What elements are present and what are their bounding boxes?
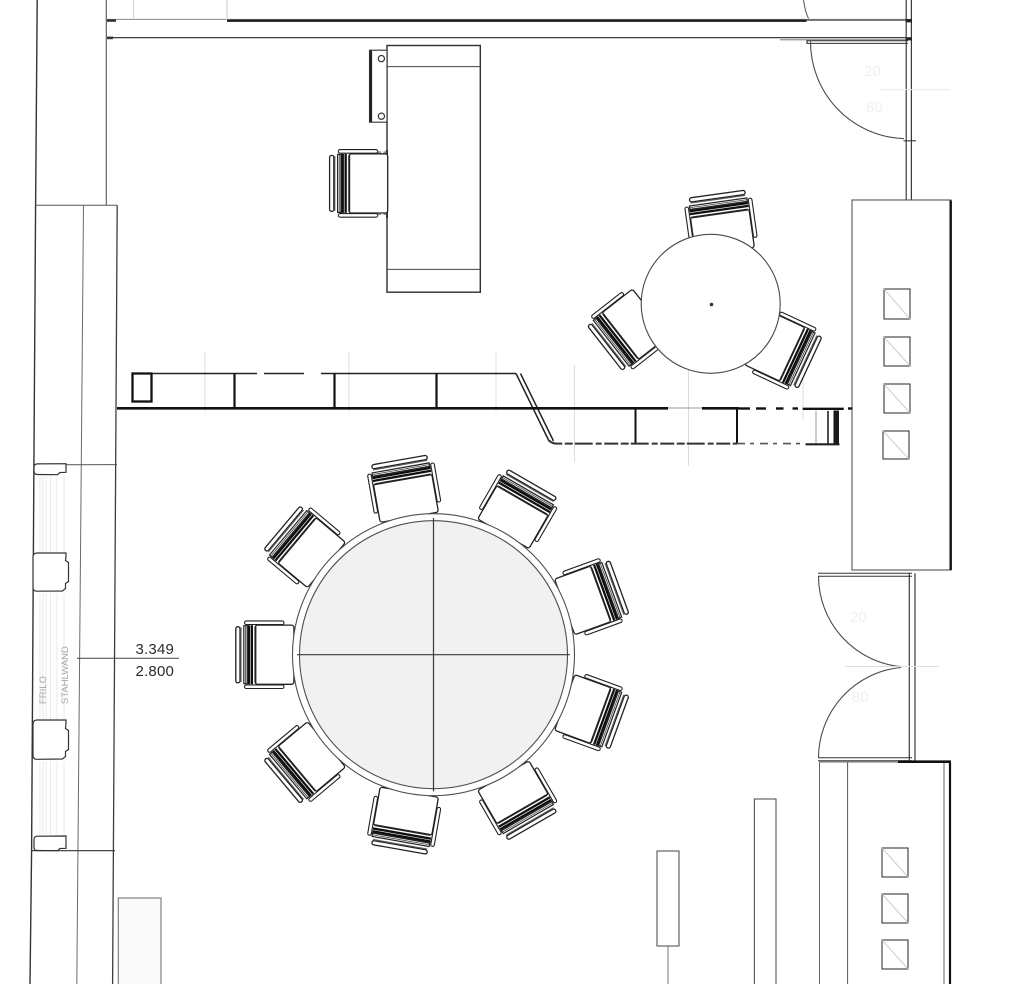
svg-text:20: 20 [864, 63, 881, 80]
svg-text:STAHLWAND: STAHLWAND [60, 646, 71, 704]
svg-text:80: 80 [866, 99, 883, 116]
svg-text:80: 80 [852, 689, 869, 706]
svg-text:3.349: 3.349 [136, 641, 175, 658]
svg-text:FRILO: FRILO [38, 676, 49, 704]
svg-text:20: 20 [850, 609, 867, 626]
svg-text:2.800: 2.800 [136, 663, 175, 680]
